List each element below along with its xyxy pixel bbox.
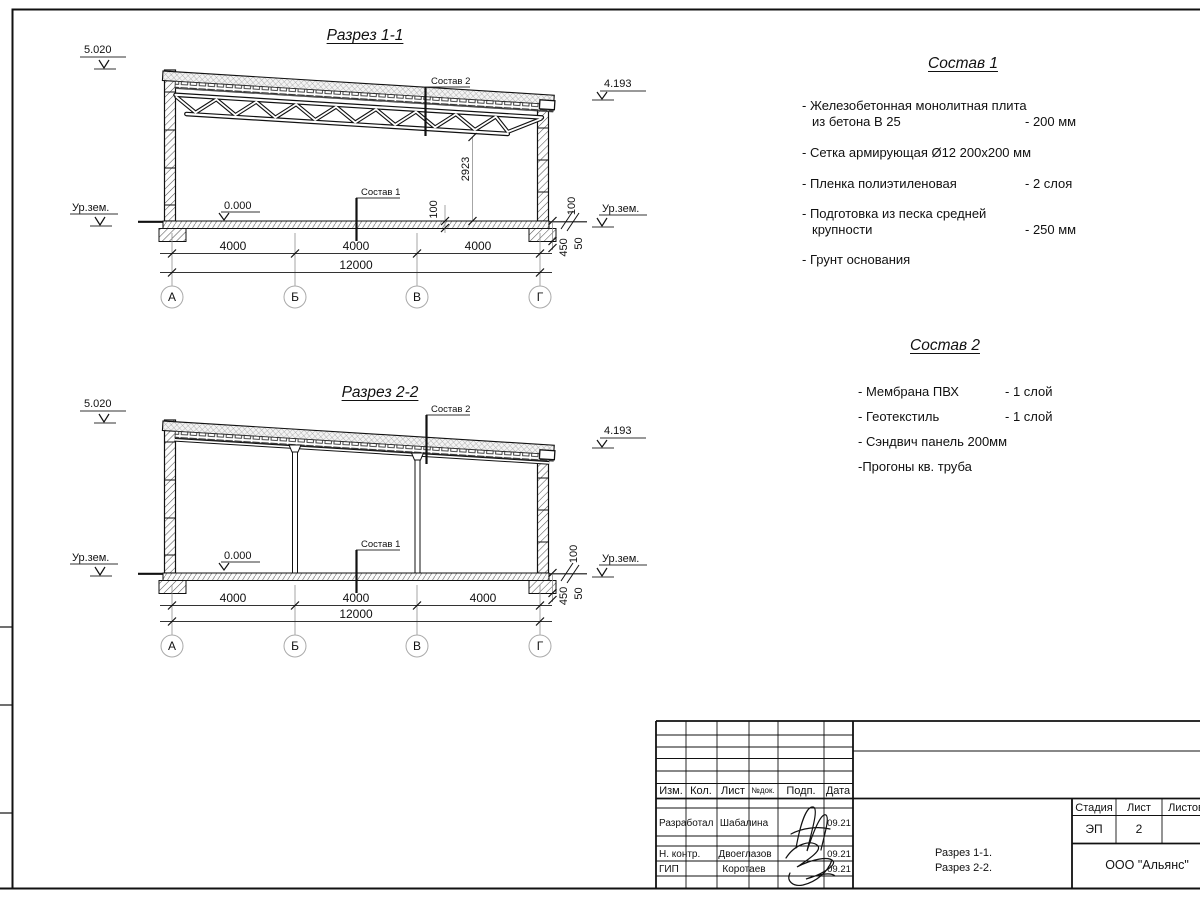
- axis-label: В: [413, 639, 421, 653]
- spec-item-value: - 2 слоя: [1025, 176, 1072, 191]
- spec-item-value: - 200 мм: [1025, 114, 1076, 129]
- elevation-left-label: 5.020: [84, 398, 112, 410]
- tb-header-izm: Изм.: [659, 785, 683, 797]
- spec2-list: - Мембрана ПВХ - 1 слой - Геотекстиль - …: [858, 380, 1118, 480]
- axis-label: А: [168, 639, 176, 653]
- tb-sheets-label: Листов: [1168, 802, 1200, 814]
- elevation-zero-label: 0.000: [224, 200, 252, 212]
- total-dim: 12000: [339, 607, 373, 621]
- tb-date: 09.21: [827, 849, 851, 860]
- span-dim: 4000: [470, 591, 497, 605]
- span-dim: 4000: [465, 239, 492, 253]
- span-dim: 4000: [343, 239, 370, 253]
- ground-level-right-label: Ур.зем.: [602, 553, 639, 565]
- span-dim: 4000: [220, 591, 247, 605]
- right-50-dim: 50: [573, 587, 585, 599]
- tb-header-kol: Кол.: [690, 785, 712, 797]
- spec1-list: - Железобетонная монолитная плита из бет…: [797, 90, 1097, 280]
- right-100-dim: 100: [566, 197, 578, 215]
- section1-floor: [138, 211, 587, 242]
- tb-stage-label: Стадия: [1075, 802, 1113, 814]
- axis-label: А: [168, 290, 176, 304]
- spec-item-line: - Подготовка из песка средней: [802, 206, 986, 221]
- tb-header-ndok: №док.: [751, 786, 774, 795]
- spec-item-line: - Сэндвич панель 200мм: [858, 434, 1007, 449]
- right-450-dim: 450: [558, 238, 570, 256]
- spec-item-line: - Железобетонная монолитная плита: [802, 98, 1027, 113]
- tb-doc-line1: Разрез 1-1.: [935, 847, 992, 859]
- callout-sostav2: Состав 2: [431, 76, 470, 87]
- span-dim: 4000: [343, 591, 370, 605]
- spec-item-line: из бетона В 25: [812, 114, 901, 129]
- axis-label: В: [413, 290, 421, 304]
- tb-header-list: Лист: [721, 785, 745, 797]
- truss-height-dim: 2923: [460, 157, 472, 181]
- tb-name: Шабалина: [720, 817, 769, 829]
- spec2-title: Состав 2: [880, 337, 1010, 355]
- span-dim: 4000: [220, 239, 247, 253]
- right-100-dim: 100: [568, 545, 580, 563]
- elevation-left-label: 5.020: [84, 44, 112, 56]
- drawing-sheet: 5.020 4.193 0.000 Ур.зем. Ур.зем. Состав…: [0, 0, 1200, 900]
- right-450-dim: 450: [558, 587, 570, 605]
- section1-roof-truss: [160, 71, 555, 137]
- tb-header-podp: Подп.: [786, 785, 815, 797]
- tb-date: 09.21: [827, 818, 851, 829]
- section2-floor: [138, 563, 587, 594]
- right-50-dim: 50: [573, 237, 585, 249]
- spec-item-line: - Сетка армирующая Ø12 200х200 мм: [802, 145, 1031, 160]
- section-1-1: 5.020 4.193 0.000 Ур.зем. Ур.зем. Состав…: [70, 44, 647, 308]
- grid-axis-bubbles: А Б В Г: [161, 286, 551, 308]
- ground-level-left-label: Ур.зем.: [72, 202, 109, 214]
- callout-sostav1: Состав 1: [361, 187, 400, 198]
- spec-item-value: - 1 слой: [1005, 409, 1053, 424]
- section-2-2: 5.020 4.193 0.000 Ур.зем. Ур.зем. Состав…: [70, 398, 647, 657]
- spec1-title: Состав 1: [898, 55, 1028, 73]
- tb-role: ГИП: [659, 864, 679, 875]
- tb-stage-value: ЭП: [1085, 822, 1102, 836]
- spec-item-line: - Геотекстиль: [858, 409, 939, 424]
- spec-item-value: - 250 мм: [1025, 222, 1076, 237]
- spec-item-value: - 1 слой: [1005, 384, 1053, 399]
- section1-vertical-dims: 2923 100 100 450 50: [428, 133, 585, 257]
- axis-label: Б: [291, 290, 299, 304]
- section1-horizontal-dims: 4000 4000 4000 12000 А Б В Г: [160, 233, 552, 308]
- tb-company: ООО "Альянс": [1105, 858, 1189, 872]
- axis-label: Г: [537, 290, 544, 304]
- spec-item-line: - Пленка полиэтиленовая: [802, 176, 957, 191]
- section2-title: Разрез 2-2: [295, 384, 465, 402]
- spec-item-line: крупности: [812, 222, 872, 237]
- section1-elevation-marks: 5.020 4.193 0.000 Ур.зем. Ур.зем.: [70, 44, 647, 227]
- section2-horizontal-dims: 4000 4000 4000 12000 А Б В Г: [160, 585, 552, 657]
- floor-100-dim: 100: [428, 200, 440, 218]
- section2-callouts: Состав 2 Состав 1: [356, 404, 470, 593]
- section1-title: Разрез 1-1: [280, 27, 450, 45]
- ground-level-right-label: Ур.зем.: [602, 203, 639, 215]
- tb-sheet-number: 2: [1136, 822, 1143, 836]
- tb-role: Разработал: [659, 817, 714, 829]
- elevation-right-label: 4.193: [604, 425, 632, 437]
- callout-sostav2: Состав 2: [431, 404, 470, 415]
- tb-sheet-label: Лист: [1127, 802, 1151, 814]
- tb-doc-line2: Разрез 2-2.: [935, 862, 992, 874]
- tb-name: Двоеглазов: [718, 849, 771, 860]
- callout-sostav1: Состав 1: [361, 539, 400, 550]
- spec-item-line: -Прогоны кв. труба: [858, 459, 972, 474]
- spec-item-line: - Грунт основания: [802, 252, 910, 267]
- axis-label: Б: [291, 639, 299, 653]
- title-block: Изм. Кол. Лист №док. Подп. Дата Разработ…: [656, 721, 1200, 888]
- tb-name: Коротаев: [722, 864, 765, 875]
- elevation-right-label: 4.193: [604, 78, 632, 90]
- grid-axis-bubbles: А Б В Г: [161, 635, 551, 657]
- tb-role: Н. контр.: [659, 849, 700, 860]
- ground-level-left-label: Ур.зем.: [72, 552, 109, 564]
- spec-item-line: - Мембрана ПВХ: [858, 384, 959, 399]
- section2-vertical-dims: 100 450 50: [549, 545, 586, 605]
- section2-roof: [162, 421, 555, 463]
- elevation-zero-label: 0.000: [224, 550, 252, 562]
- axis-label: Г: [537, 639, 544, 653]
- tb-header-data: Дата: [826, 785, 851, 797]
- total-dim: 12000: [339, 258, 373, 272]
